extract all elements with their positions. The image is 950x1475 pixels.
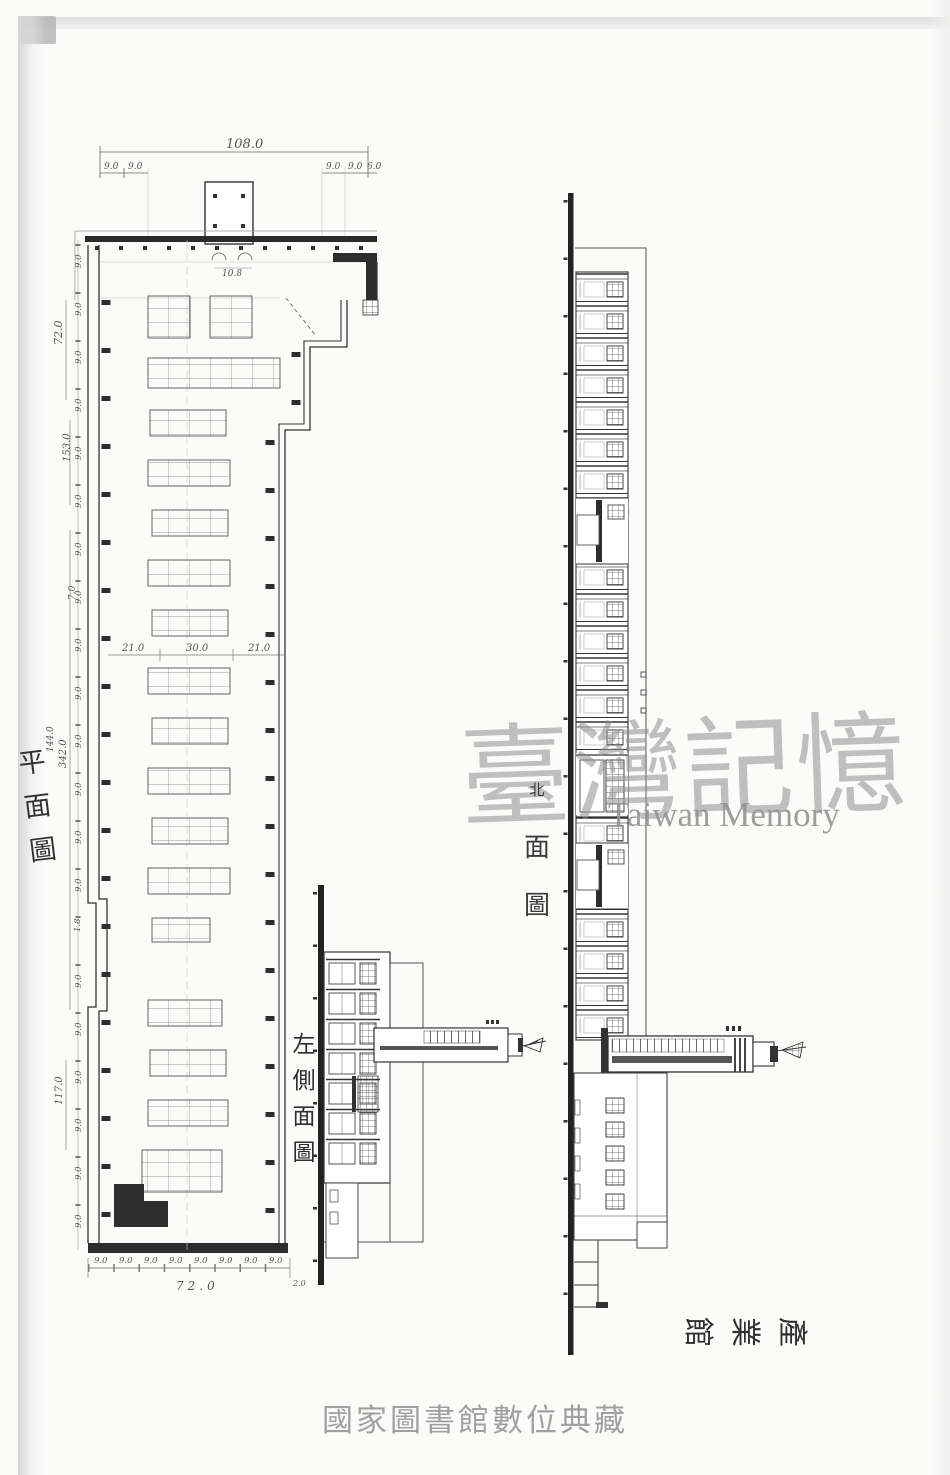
svg-text:9.0: 9.0 (169, 1256, 183, 1266)
front-title-char-2: 面 (524, 827, 550, 864)
svg-text:9.0: 9.0 (74, 302, 84, 316)
dim-width-a: 21.0 (121, 643, 145, 654)
svg-text:9.0: 9.0 (74, 1166, 84, 1180)
front-entrance-1 (576, 498, 628, 564)
building-name-char-3: 館 (679, 1317, 723, 1347)
svg-text:9.0: 9.0 (74, 494, 84, 508)
svg-text:9.0: 9.0 (269, 1256, 283, 1266)
dim-width-c: 21.0 (247, 643, 271, 654)
dim-top-seg: 9.0 (104, 162, 119, 172)
svg-text:9.0: 9.0 (119, 1256, 133, 1266)
dim-width-b: 30.0 (186, 643, 209, 654)
dim-left-72: 72.0 (52, 321, 65, 346)
svg-text:9.0: 9.0 (74, 830, 84, 844)
svg-text:9.0: 9.0 (74, 638, 84, 652)
svg-text:9.0: 9.0 (194, 1256, 208, 1266)
svg-text:9.0: 9.0 (244, 1256, 258, 1266)
svg-text:9.0: 9.0 (74, 350, 84, 364)
dim-bottom-total: 72.0 (176, 1279, 219, 1293)
dim-left-144: 144.0 (46, 726, 56, 752)
svg-text:9.0: 9.0 (219, 1256, 233, 1266)
svg-text:9.0: 9.0 (74, 398, 84, 412)
side-tower (374, 1020, 546, 1062)
front-entrance-2 (576, 843, 628, 909)
svg-text:9.0: 9.0 (74, 1118, 84, 1132)
svg-text:9.0: 9.0 (74, 878, 84, 892)
front-elevation-title: 北 面 圖 (524, 779, 550, 943)
dim-top-seg: 9.0 (348, 162, 363, 172)
front-tower (601, 1026, 806, 1074)
front-title-char-3: 圖 (524, 885, 550, 922)
side-ground-line (318, 885, 324, 1285)
dim-left-117: 117.0 (54, 1076, 65, 1105)
front-title-char-1: 北 (530, 779, 545, 800)
plan-bottom-bay-labels: 9.0 9.0 9.0 9.0 9.0 9.0 9.0 9.0 (94, 1256, 283, 1266)
dim-left-18: 1.8 (73, 918, 83, 932)
dim-bottom-end: 2.0 (292, 1279, 306, 1288)
svg-text:9.0: 9.0 (74, 446, 84, 460)
side-elevation-title: 左側面圖 (284, 1032, 318, 1176)
dim-top-seg-end: 6.0 (367, 162, 382, 172)
archive-caption: 國家圖書館數位典藏 (0, 1395, 950, 1440)
dim-left-153: 153.0 (62, 433, 73, 462)
plan-entrance-porch (205, 182, 253, 268)
dim-left-7: 7.0 (68, 585, 78, 600)
dim-top-seg: 9.0 (326, 162, 341, 172)
dim-top-total: 108.0 (226, 137, 263, 152)
svg-text:9.0: 9.0 (74, 1070, 84, 1084)
svg-text:9.0: 9.0 (144, 1256, 158, 1266)
dim-top-seg: 9.0 (128, 162, 143, 172)
watermark-latin: Taiwan Memory (608, 795, 840, 835)
front-facade-bays (576, 272, 628, 1040)
front-base-steps (574, 1240, 608, 1308)
building-name-char-2: 業 (726, 1317, 770, 1347)
building-name-char-1: 產 (773, 1317, 817, 1347)
plan-left-bay-labels: 9.0 9.0 9.0 9.0 9.0 9.0 9.0 9.0 9.0 9.0 … (74, 254, 84, 1228)
svg-text:9.0: 9.0 (74, 974, 84, 988)
dim-porch: 10.8 (222, 269, 242, 279)
svg-text:9.0: 9.0 (74, 782, 84, 796)
front-lower-wing (574, 1073, 667, 1248)
side-elevation (315, 885, 546, 1285)
svg-text:9.0: 9.0 (74, 734, 84, 748)
svg-text:9.0: 9.0 (94, 1256, 108, 1266)
svg-text:9.0: 9.0 (74, 1214, 84, 1228)
svg-text:9.0: 9.0 (74, 254, 84, 268)
svg-text:9.0: 9.0 (74, 686, 84, 700)
scanned-drawing-page: 108.0 9.0 9.0 9.0 9.0 6.0 10.8 (0, 0, 950, 1475)
building-name: 館 業 產 (686, 1310, 810, 1354)
dim-left-342: 342.0 (58, 739, 69, 768)
svg-text:9.0: 9.0 (74, 542, 84, 556)
svg-text:9.0: 9.0 (74, 1022, 84, 1036)
plan-display-tables (142, 296, 280, 1192)
